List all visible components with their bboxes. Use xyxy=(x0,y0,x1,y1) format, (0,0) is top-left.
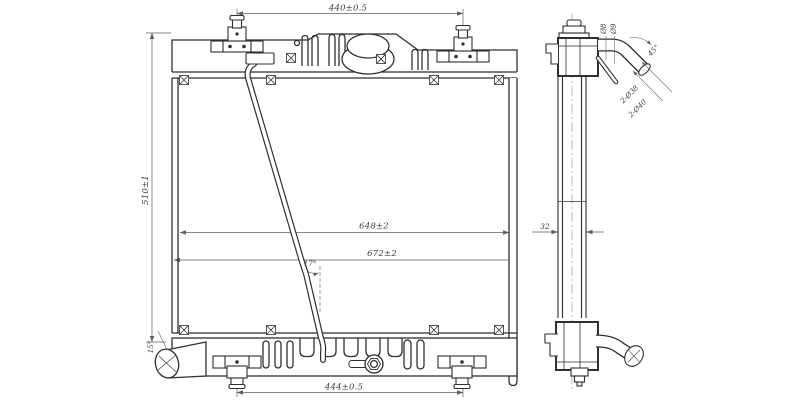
side-top-tank xyxy=(546,20,598,76)
top-tank-core-joint xyxy=(172,72,517,78)
side-bottom-tank xyxy=(545,322,598,370)
side-outlet-pipe xyxy=(596,341,647,370)
core-left-side-plate xyxy=(172,78,178,333)
dim-core-depth: 32 xyxy=(540,222,550,231)
crimp-clips xyxy=(180,55,504,335)
front-view: 440±0.5 510±1 648±2 672±2 444±0.5 17° 15… xyxy=(141,4,517,398)
filler-cap-side xyxy=(563,26,585,33)
bracket-top-right xyxy=(437,26,489,63)
side-view: 32 Ø8 Ø9 45° 2-Ø38 2-Ø40 xyxy=(532,14,672,392)
bracket-top-left xyxy=(211,16,263,53)
angle-inlet-pipe: 45° xyxy=(645,43,661,59)
side-drain-plug xyxy=(571,368,588,386)
radiator-technical-drawing: 440±0.5 510±1 648±2 672±2 444±0.5 17° 15… xyxy=(0,0,800,400)
dim-overflow-inner: Ø8 xyxy=(599,23,608,35)
dim-top-width: 440±0.5 xyxy=(328,4,367,14)
outlet-pipe-front xyxy=(153,342,206,380)
dim-core-width-outer: 672±2 xyxy=(367,249,397,259)
overflow-tube-fitting xyxy=(246,53,274,64)
drawing-canvas: 440±0.5 510±1 648±2 672±2 444±0.5 17° 15… xyxy=(0,0,800,400)
dim-core-width-inner: 648±2 xyxy=(359,222,389,232)
side-bracket-top xyxy=(546,44,558,64)
angle-outlet-pipe: 15° xyxy=(146,341,155,354)
side-overflow-nipple xyxy=(598,58,616,82)
side-bracket-bottom xyxy=(545,334,558,356)
dim-bottom-width: 444±0.5 xyxy=(324,383,363,393)
angle-overflow-tube: 17° xyxy=(304,259,317,268)
dim-overflow-outer: Ø9 xyxy=(609,23,618,35)
overflow-tube xyxy=(246,53,323,360)
dim-left-height: 510±1 xyxy=(141,175,151,205)
